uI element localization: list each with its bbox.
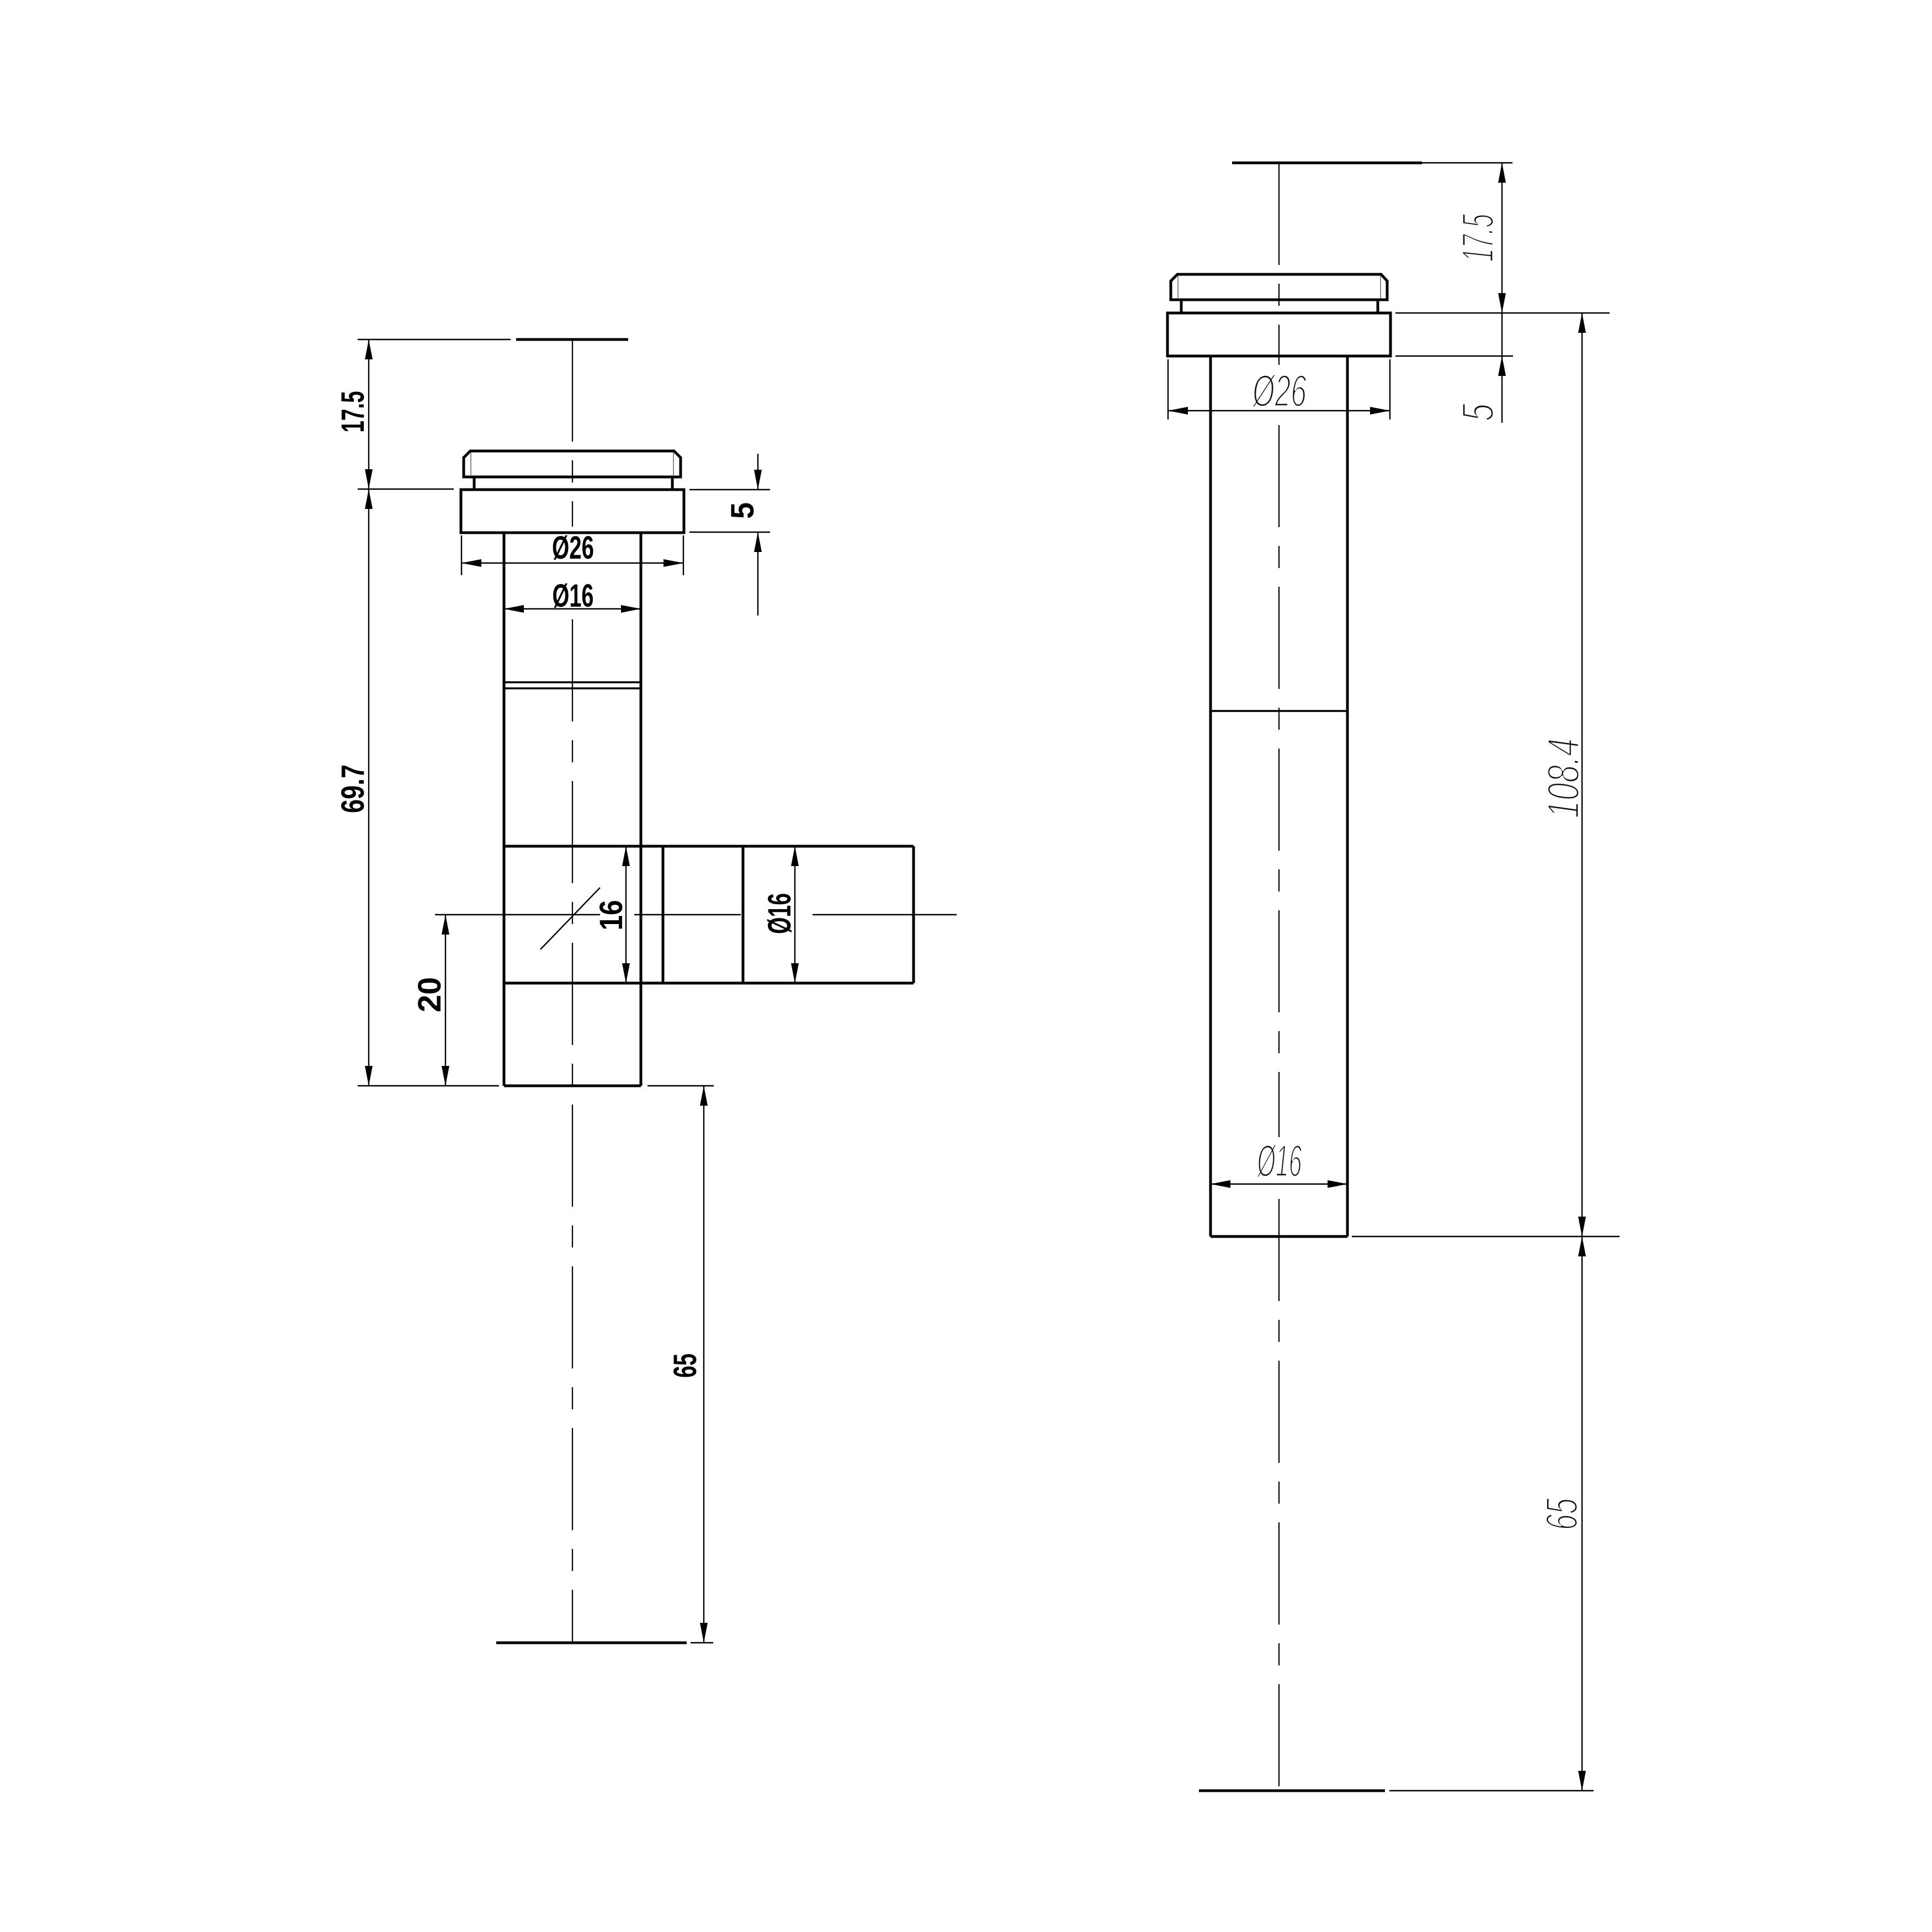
svg-text:16: 16 xyxy=(593,900,629,931)
svg-text:Ø26: Ø26 xyxy=(1251,366,1307,416)
svg-text:17.5: 17.5 xyxy=(1453,214,1503,262)
svg-text:17.5: 17.5 xyxy=(335,391,371,433)
svg-text:20: 20 xyxy=(412,977,448,1012)
svg-text:Ø16: Ø16 xyxy=(553,578,594,614)
svg-text:69.7: 69.7 xyxy=(335,765,371,813)
svg-text:Ø16: Ø16 xyxy=(1256,1136,1302,1186)
svg-text:108.4: 108.4 xyxy=(1538,739,1589,819)
svg-text:5: 5 xyxy=(1453,404,1503,421)
svg-text:65: 65 xyxy=(667,1354,703,1378)
svg-text:Ø16: Ø16 xyxy=(762,893,798,934)
svg-text:Ø26: Ø26 xyxy=(552,530,594,566)
svg-text:5: 5 xyxy=(725,502,761,519)
svg-text:65: 65 xyxy=(1537,1498,1587,1530)
